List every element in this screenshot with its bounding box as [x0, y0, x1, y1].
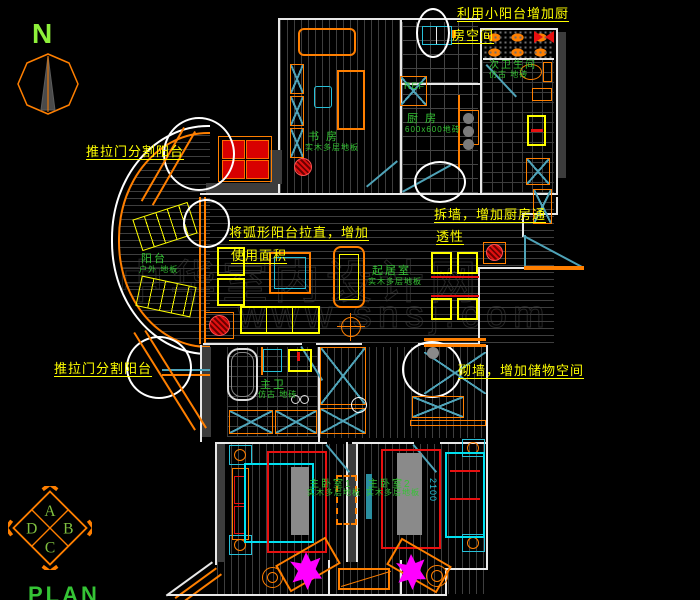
dining-chair	[457, 252, 478, 274]
wall-segment	[445, 568, 488, 570]
wall-segment	[478, 267, 524, 269]
dining-table-edge	[431, 295, 479, 297]
quadrant-a: A	[44, 503, 56, 520]
bed-frame-line	[450, 498, 480, 500]
tv-cabinet-inner	[339, 254, 359, 300]
dining-table-edge	[431, 276, 479, 278]
column-marker	[209, 315, 230, 336]
floor-label-balcony: 户外 地板	[139, 264, 178, 275]
study-chair	[314, 86, 332, 108]
storage-strip	[410, 420, 486, 426]
wc-fixture	[427, 347, 439, 359]
wall-segment	[215, 442, 327, 444]
bath-sink	[532, 88, 552, 101]
demolish-marker-left	[534, 31, 543, 43]
sofa-cushion-line	[292, 308, 293, 332]
table-lamp	[234, 449, 246, 461]
bed-dimension: 2100	[428, 478, 438, 502]
compass-icon	[16, 52, 80, 116]
floor-label-bedroom1: 实木多层地板	[307, 487, 361, 498]
floor-label-study: 实木多层地板	[305, 142, 359, 153]
compass-north-label: N	[32, 18, 52, 50]
storage-closet	[412, 396, 464, 418]
column-marker	[486, 244, 503, 261]
sofa-cushion-line	[266, 308, 267, 332]
chamfer-wall	[166, 561, 213, 596]
bed-frame	[445, 452, 485, 538]
wall-segment	[352, 442, 414, 444]
dining-chair	[431, 298, 452, 320]
plan-title: PLAN	[28, 582, 100, 600]
wall-segment	[167, 594, 447, 596]
burner	[463, 139, 474, 150]
window-column	[290, 64, 304, 94]
annotation-demolish-1: 拆墙，增加厨房通	[434, 204, 546, 223]
burner	[463, 113, 474, 124]
red-tile	[246, 140, 269, 159]
quadrant-c: C	[45, 540, 55, 557]
shower-valve	[531, 129, 543, 132]
closet	[229, 410, 273, 434]
fridge-label: REF	[404, 81, 425, 91]
wall-segment	[316, 343, 362, 345]
callout-circle	[416, 8, 450, 58]
column-marker	[294, 158, 312, 176]
wall-segment	[203, 343, 302, 345]
annotation-kitchen-balcony-2: 房空间	[452, 25, 494, 44]
toilet-bowl	[300, 395, 309, 404]
wall-segment	[478, 269, 480, 345]
entry-door-leaf	[524, 266, 584, 270]
wall-segment	[200, 193, 558, 195]
floor-label-bedroom2: 实木多层地板	[366, 487, 420, 498]
window-column	[290, 96, 304, 126]
lamp-cross	[350, 313, 351, 341]
quadrant-b: B	[63, 520, 73, 537]
red-tile	[246, 160, 269, 179]
lamp-cross	[337, 326, 365, 327]
entry-door-jamb	[524, 235, 526, 266]
callout-circle	[414, 161, 466, 203]
wall-segment	[278, 18, 402, 20]
toilet-tank	[543, 62, 552, 82]
floor-label-master-bath: 仿古 地砖	[258, 389, 297, 400]
dining-chair	[431, 252, 452, 274]
floor-plan-canvas: 中华室内设计网 www.snsj.com	[0, 0, 700, 600]
armchair	[217, 278, 245, 306]
shower-valve	[297, 352, 300, 361]
floor-label-living: 实木多层地板	[368, 276, 422, 287]
study-cabinet	[298, 28, 356, 56]
sofa	[240, 306, 320, 334]
annotation-straighten-2: 使用面积	[231, 245, 287, 264]
bathtub-inner	[231, 352, 254, 397]
annotation-sliding-door-top: 推拉门分割阳台	[86, 141, 184, 160]
dining-chair	[457, 298, 478, 320]
wall-poche	[558, 32, 566, 178]
annotation-sliding-door-bottom: 推拉门分割阳台	[54, 358, 152, 377]
annotation-demolish-2: 透性	[436, 226, 464, 245]
annotation-build-wall: 砌墙，增加储物空间	[458, 360, 584, 379]
shower-fixture	[288, 349, 312, 372]
bed-runner	[291, 467, 309, 535]
storage-box	[526, 158, 550, 185]
callout-circle	[183, 199, 230, 248]
wall-poche	[217, 444, 225, 562]
annotation-straighten-1: 将弧形阳台拉直，增加	[229, 222, 369, 241]
wall-segment	[400, 18, 402, 195]
storage-shelf	[424, 338, 486, 341]
annotation-kitchen-balcony-1: 利用小阳台增加厨	[457, 3, 569, 22]
quadrant-d: D	[26, 520, 37, 537]
table-lamp	[467, 537, 479, 549]
bed-frame-line	[450, 470, 480, 472]
index-diamond: A B C D	[8, 486, 92, 570]
hall-lamp-symbol	[351, 397, 367, 413]
floor-label-kitchen: 600x600地砖	[405, 124, 461, 135]
wall-segment	[480, 28, 482, 195]
study-desk	[337, 70, 365, 130]
window-column	[290, 128, 304, 158]
closet	[275, 410, 317, 434]
ceiling-lamp-symbol	[341, 317, 361, 337]
demolish-marker-right	[545, 31, 554, 43]
stool-inner	[267, 572, 278, 583]
floor-label-second-bath: 仿古 地砖	[489, 69, 528, 80]
burner	[463, 126, 474, 137]
vanity-sink	[263, 349, 282, 372]
